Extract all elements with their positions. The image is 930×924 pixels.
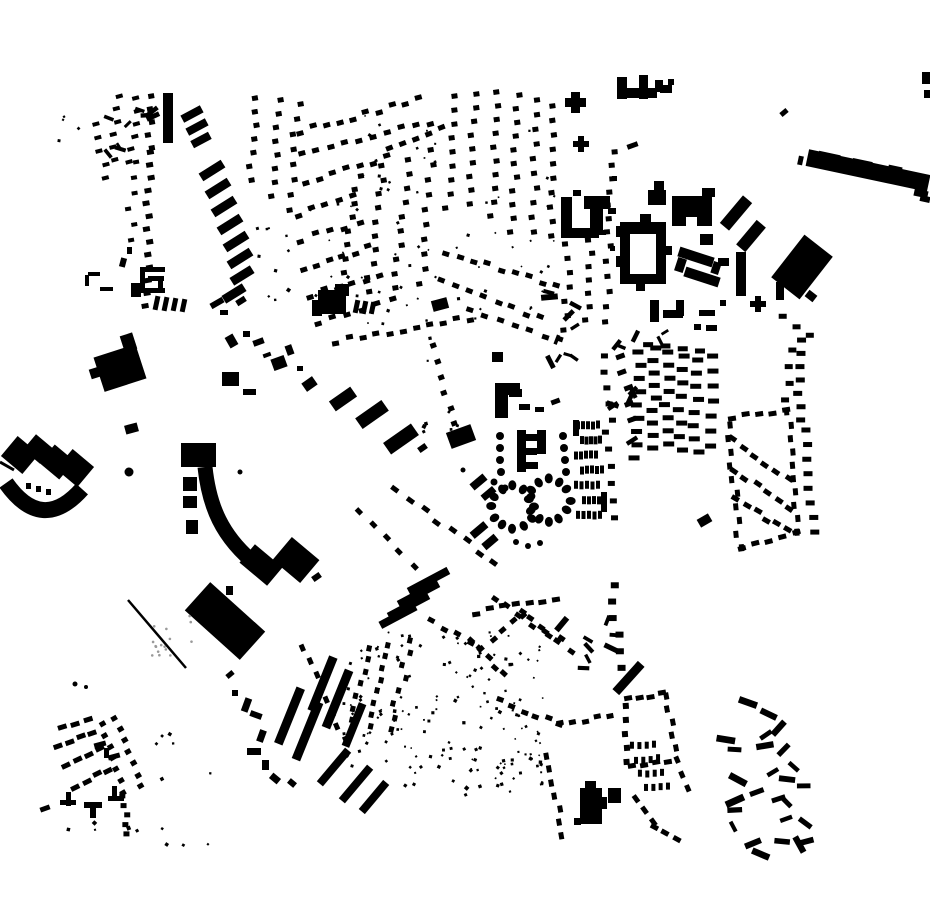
building — [690, 384, 701, 389]
building — [435, 708, 437, 710]
building — [584, 451, 588, 459]
building — [531, 170, 538, 176]
building — [493, 653, 496, 656]
building — [519, 771, 522, 774]
stipple-dot — [153, 625, 156, 628]
building — [606, 713, 614, 719]
building — [528, 622, 537, 630]
building — [307, 657, 314, 665]
building — [143, 226, 151, 232]
building — [691, 371, 702, 376]
building — [414, 94, 422, 101]
building — [511, 246, 514, 249]
building — [383, 424, 419, 455]
building-dot — [566, 497, 576, 505]
building — [378, 123, 381, 126]
building — [379, 665, 385, 672]
building — [388, 181, 391, 184]
building — [380, 177, 387, 183]
building — [512, 106, 519, 112]
building — [664, 376, 675, 381]
building — [272, 179, 279, 185]
stipple-dot — [169, 638, 172, 641]
building — [127, 146, 135, 152]
building — [538, 645, 541, 648]
building — [164, 842, 169, 847]
building — [383, 152, 391, 159]
building — [396, 221, 400, 225]
building — [496, 784, 500, 788]
building — [760, 461, 769, 470]
building — [361, 276, 363, 278]
building — [414, 772, 417, 775]
building — [144, 188, 152, 194]
building — [314, 294, 318, 298]
building — [512, 133, 519, 139]
building — [797, 404, 806, 409]
building — [296, 239, 304, 246]
building — [131, 134, 139, 140]
building — [110, 715, 118, 722]
building — [466, 174, 473, 180]
building — [509, 616, 518, 624]
building — [485, 201, 488, 204]
building — [795, 515, 801, 522]
building — [243, 389, 256, 395]
building — [297, 101, 304, 107]
building — [247, 748, 261, 755]
building — [92, 769, 102, 777]
building — [398, 214, 405, 220]
building — [656, 336, 663, 345]
building — [367, 322, 369, 324]
building — [301, 376, 317, 392]
building — [88, 272, 100, 276]
building — [492, 172, 499, 178]
building-dot — [238, 470, 243, 475]
building — [440, 626, 449, 634]
building — [790, 462, 796, 469]
building — [272, 166, 279, 172]
building — [739, 444, 748, 453]
building — [397, 123, 405, 130]
building — [545, 714, 553, 721]
building — [554, 616, 569, 633]
building — [432, 518, 441, 527]
building — [530, 156, 537, 162]
building — [337, 203, 340, 206]
building — [451, 107, 458, 113]
building — [764, 538, 773, 545]
building — [483, 289, 487, 293]
building — [449, 757, 452, 760]
building — [708, 384, 719, 389]
building — [567, 284, 573, 290]
building — [595, 466, 599, 474]
building — [378, 163, 385, 169]
building — [209, 772, 212, 775]
building — [659, 402, 670, 407]
building — [466, 201, 473, 207]
building — [311, 147, 319, 154]
building — [650, 300, 659, 322]
building — [356, 294, 359, 297]
building — [591, 422, 595, 430]
building — [273, 537, 320, 583]
building — [640, 805, 649, 814]
building — [512, 709, 514, 711]
building — [576, 421, 580, 429]
building — [511, 269, 519, 276]
building — [473, 668, 477, 672]
building — [626, 141, 638, 149]
building — [473, 758, 477, 762]
building — [249, 710, 262, 720]
building — [185, 582, 265, 660]
building — [251, 109, 258, 115]
building — [649, 756, 653, 763]
building — [728, 449, 734, 456]
building-dot — [73, 682, 78, 687]
building — [130, 759, 138, 766]
building — [352, 692, 358, 699]
building — [477, 655, 480, 658]
building — [536, 660, 538, 662]
building — [289, 131, 296, 137]
building — [76, 732, 86, 740]
building — [798, 817, 813, 830]
building — [314, 320, 322, 327]
building — [148, 93, 155, 99]
building — [425, 319, 428, 322]
building — [587, 511, 591, 519]
building — [494, 232, 496, 234]
building — [528, 214, 535, 220]
building — [450, 428, 453, 431]
building — [494, 777, 496, 779]
building — [483, 259, 491, 266]
building — [131, 191, 138, 196]
building — [779, 314, 787, 319]
building — [183, 496, 197, 508]
building — [309, 122, 317, 129]
stipple-dot — [169, 654, 172, 657]
building — [664, 705, 670, 713]
building — [774, 496, 783, 505]
building — [112, 765, 120, 772]
building — [287, 249, 290, 252]
building — [526, 434, 538, 441]
building — [396, 728, 399, 731]
building — [574, 818, 581, 825]
building — [670, 718, 676, 726]
building — [277, 97, 284, 103]
building — [296, 130, 304, 137]
building — [727, 807, 742, 813]
building — [371, 261, 378, 267]
building — [770, 719, 786, 736]
building — [388, 726, 394, 733]
building-dot — [496, 444, 504, 452]
building — [538, 649, 541, 652]
building — [596, 420, 600, 428]
building — [377, 655, 380, 658]
building-dot — [518, 520, 530, 533]
building — [407, 713, 410, 716]
building — [788, 422, 794, 429]
building-dot — [533, 476, 545, 489]
building — [421, 236, 428, 242]
building — [555, 354, 562, 363]
building — [333, 722, 340, 730]
building — [736, 252, 746, 296]
building — [574, 452, 578, 460]
building — [375, 205, 382, 211]
building — [741, 411, 750, 417]
building — [217, 214, 244, 235]
building — [473, 91, 480, 97]
building — [585, 437, 589, 445]
building — [329, 387, 357, 412]
building — [529, 240, 532, 243]
building — [65, 738, 75, 746]
building — [455, 246, 458, 249]
building — [608, 162, 614, 168]
building — [346, 334, 354, 340]
building — [372, 219, 379, 225]
building — [330, 275, 333, 278]
building — [128, 238, 135, 243]
building — [365, 741, 369, 745]
building — [464, 793, 468, 797]
building — [500, 782, 504, 786]
building — [511, 601, 520, 607]
building — [386, 188, 390, 192]
building — [381, 322, 384, 325]
building — [252, 337, 264, 346]
building-dot — [553, 512, 565, 525]
building — [678, 770, 685, 778]
building — [132, 95, 140, 101]
building — [793, 488, 799, 495]
building — [553, 240, 555, 242]
building — [474, 317, 476, 319]
building-dot — [525, 543, 531, 549]
building — [653, 770, 657, 777]
building — [570, 323, 580, 331]
building — [728, 772, 748, 787]
building — [651, 396, 662, 401]
building — [416, 191, 419, 194]
building — [466, 306, 474, 313]
building — [422, 266, 429, 272]
building — [101, 175, 109, 181]
building — [100, 287, 113, 291]
building — [401, 634, 404, 637]
building — [598, 797, 607, 809]
building — [342, 256, 349, 262]
building — [392, 285, 399, 291]
building — [693, 450, 704, 455]
building — [160, 734, 164, 738]
building — [415, 706, 418, 709]
building — [651, 784, 655, 791]
building — [347, 280, 355, 287]
building — [435, 695, 438, 698]
building — [142, 200, 150, 206]
building — [84, 802, 102, 808]
building — [727, 421, 733, 428]
building — [351, 712, 354, 715]
building — [596, 481, 600, 489]
stipple-dot — [158, 654, 161, 657]
building — [597, 496, 601, 504]
building — [580, 467, 584, 475]
building — [604, 274, 610, 280]
building-dot — [562, 468, 570, 476]
building — [645, 770, 649, 777]
building — [635, 363, 646, 368]
building — [366, 645, 372, 652]
building-dot — [513, 539, 519, 545]
building — [603, 258, 609, 264]
building — [287, 192, 294, 198]
building — [367, 677, 369, 679]
building-dot — [545, 517, 553, 527]
building — [624, 695, 633, 701]
building — [611, 515, 618, 520]
building — [729, 821, 738, 833]
building — [344, 242, 351, 248]
building — [399, 696, 402, 699]
building — [504, 689, 507, 692]
building — [85, 275, 89, 286]
building — [783, 525, 792, 533]
building — [382, 653, 388, 660]
building — [360, 657, 363, 660]
building — [385, 144, 393, 151]
building — [608, 208, 616, 214]
building — [609, 418, 616, 423]
building — [535, 407, 544, 412]
building — [539, 280, 547, 287]
building — [299, 644, 306, 652]
building — [358, 698, 362, 702]
building — [538, 599, 547, 605]
building — [528, 130, 530, 132]
building — [431, 297, 449, 312]
building — [663, 363, 674, 368]
building — [562, 309, 575, 322]
building — [131, 175, 138, 180]
building — [562, 241, 568, 247]
building — [355, 400, 389, 429]
building — [485, 653, 494, 661]
building — [466, 233, 470, 237]
building — [788, 348, 796, 353]
building — [540, 771, 542, 773]
building — [39, 804, 50, 812]
building — [608, 243, 614, 249]
building — [232, 690, 238, 696]
building — [487, 678, 490, 681]
building — [649, 371, 660, 376]
building — [529, 753, 532, 756]
building — [491, 595, 500, 603]
building — [568, 719, 576, 725]
building — [645, 742, 649, 749]
building — [356, 220, 364, 227]
building — [580, 436, 584, 444]
map-canvas — [0, 0, 930, 924]
building — [378, 290, 381, 293]
building — [716, 735, 736, 745]
building — [509, 790, 512, 793]
building — [492, 130, 499, 136]
building — [393, 709, 397, 713]
stipple-dot — [155, 645, 158, 648]
building — [507, 303, 515, 310]
notched-building — [672, 196, 712, 226]
building — [496, 696, 504, 703]
building — [155, 742, 159, 746]
building — [702, 188, 715, 197]
building — [268, 193, 275, 199]
building — [362, 668, 368, 675]
building — [673, 756, 680, 764]
building — [359, 780, 390, 814]
building — [539, 742, 541, 744]
building — [585, 781, 596, 789]
building — [316, 176, 324, 183]
building — [664, 759, 673, 765]
building-dot — [524, 495, 534, 503]
building — [457, 642, 459, 644]
building-dot — [560, 504, 573, 516]
building — [699, 310, 715, 316]
building — [401, 244, 405, 248]
building — [548, 190, 555, 196]
building — [805, 290, 818, 302]
building — [512, 777, 515, 780]
building — [243, 331, 250, 337]
building — [117, 725, 125, 732]
building — [364, 242, 372, 249]
building — [480, 666, 484, 670]
cross-building-2 — [573, 136, 589, 152]
building — [332, 340, 340, 346]
building — [749, 452, 758, 461]
building — [467, 132, 474, 138]
building — [524, 725, 527, 728]
building — [647, 446, 658, 451]
building — [576, 511, 580, 519]
building — [736, 220, 766, 252]
building — [423, 719, 425, 721]
building — [652, 741, 656, 748]
building — [453, 698, 458, 703]
building — [580, 481, 584, 489]
building — [408, 634, 411, 637]
building — [590, 465, 594, 473]
building — [117, 777, 125, 784]
building — [312, 300, 322, 316]
building — [533, 141, 540, 147]
building — [705, 429, 716, 434]
building — [511, 322, 519, 329]
building — [631, 442, 642, 447]
building — [557, 805, 563, 813]
